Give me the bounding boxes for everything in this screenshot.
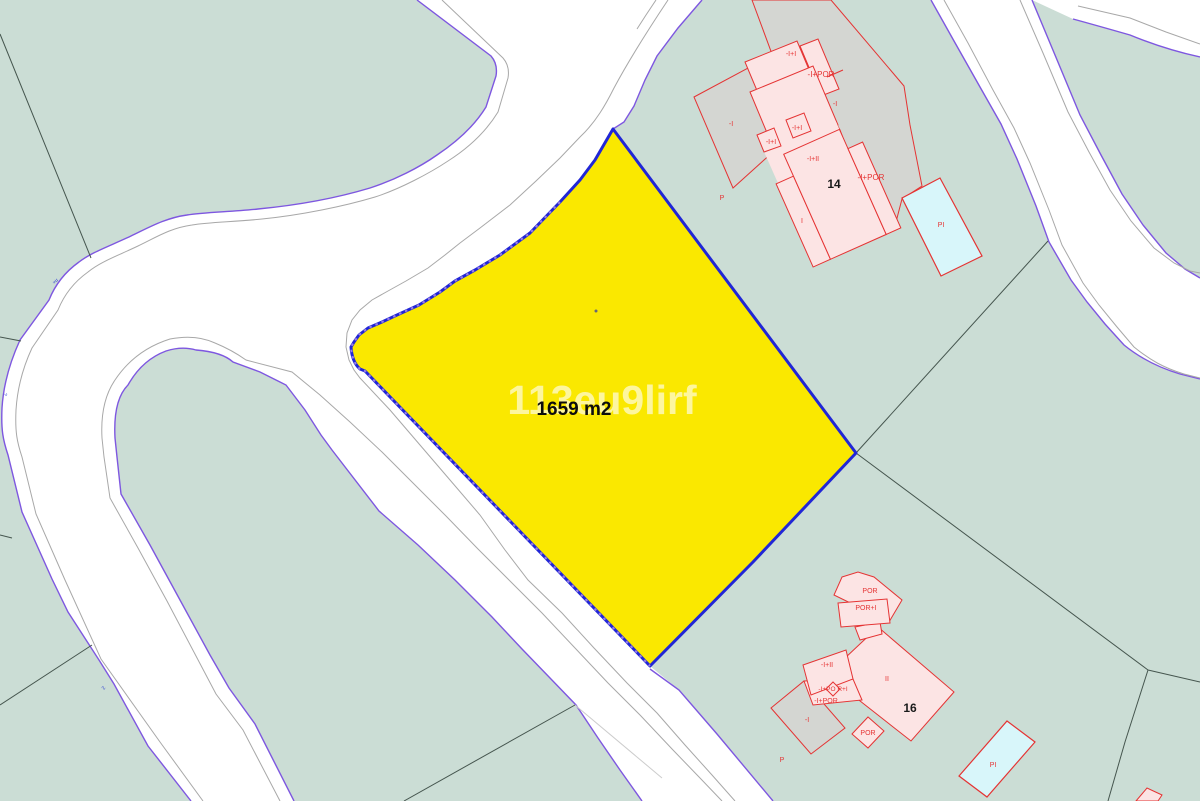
svg-text:16: 16: [903, 701, 917, 715]
svg-text:-I: -I: [729, 121, 733, 128]
svg-text:P: P: [780, 757, 785, 764]
svg-text:P: P: [720, 195, 725, 202]
svg-text:14: 14: [827, 177, 841, 191]
svg-text:PI: PI: [938, 222, 945, 229]
svg-text:PI: PI: [990, 762, 997, 769]
svg-text:-I+II: -I+II: [821, 662, 833, 669]
svg-text:-I+I: -I+I: [786, 51, 796, 58]
svg-text:POR+I: POR+I: [855, 605, 876, 612]
svg-text:-I+I: -I+I: [766, 139, 776, 146]
svg-text:-I+PO R+I: -I+PO R+I: [818, 686, 847, 693]
svg-text:POR: POR: [862, 588, 877, 595]
svg-text:-I+POR: -I+POR: [858, 173, 885, 182]
svg-text:-I+I: -I+I: [792, 125, 802, 132]
svg-text:-I+POR: -I+POR: [814, 698, 838, 705]
svg-text:II: II: [885, 676, 889, 683]
svg-text:-I: -I: [805, 717, 809, 724]
svg-text:-I+II: -I+II: [807, 156, 819, 163]
svg-text:-I: -I: [833, 101, 837, 108]
svg-text:-I+POR: -I+POR: [808, 70, 835, 79]
svg-text:POR: POR: [860, 730, 875, 737]
svg-text:1659 m2: 1659 m2: [536, 399, 611, 420]
svg-text:I: I: [801, 218, 803, 225]
